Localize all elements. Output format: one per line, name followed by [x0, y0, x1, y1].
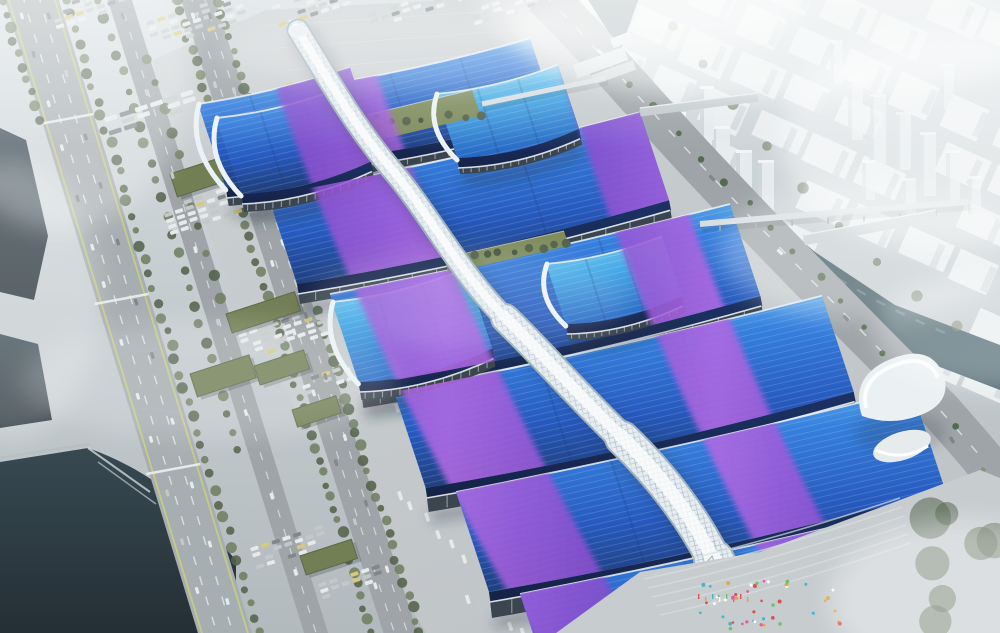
atmospheric-haze	[0, 0, 1000, 633]
aerial-rendering-canvas	[0, 0, 1000, 633]
rendering-stage	[0, 0, 1000, 633]
